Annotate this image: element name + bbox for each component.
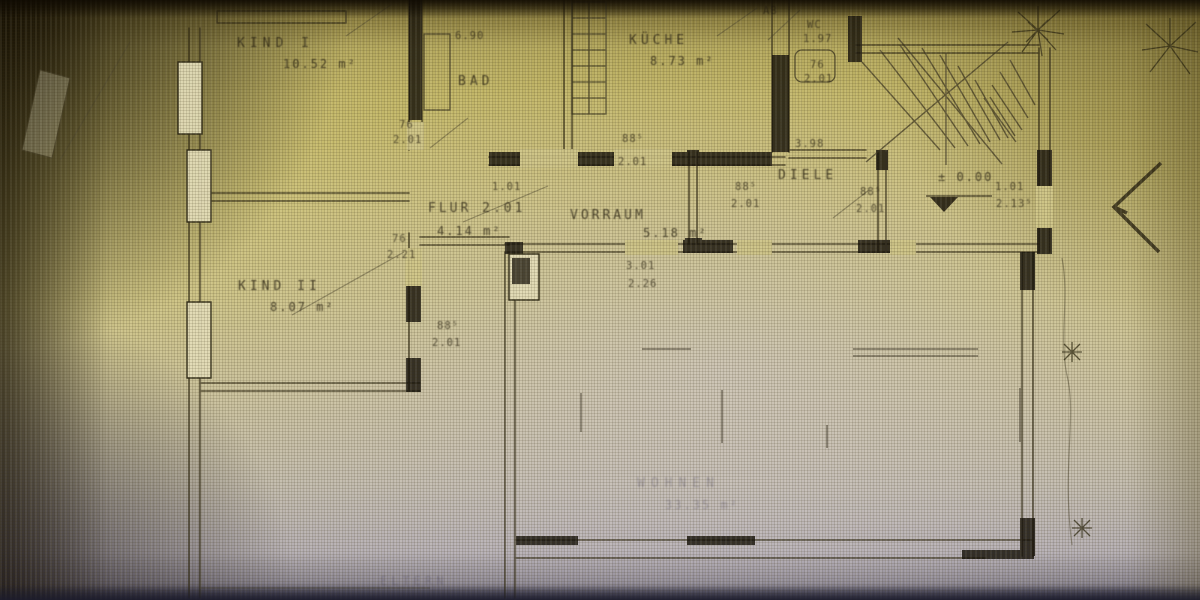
dim-flur-opening: 1.01	[492, 181, 521, 193]
room-area-wc: 1.97	[803, 33, 832, 45]
door-leaf	[512, 258, 530, 284]
windows	[178, 62, 539, 378]
entrance-arrow-icon	[1114, 163, 1161, 252]
dim-kind2-door2-w: 88⁵	[437, 320, 459, 332]
room-area-flur: 4.14 m²	[437, 224, 502, 238]
dim-wc-door-w: 76	[810, 59, 825, 71]
neighbor-balcony	[22, 70, 70, 158]
room-label-wohnen: WOHNEN	[637, 476, 720, 491]
room-area-diele: 3.98	[795, 138, 824, 150]
floorplan-photo: KIND I 10.52 m² 6.90 BAD KÜCHE 8.73 m² A…	[0, 0, 1200, 600]
dim-entry-door-w: 1.01	[995, 181, 1024, 193]
dim-kueche-door-h: 2.01	[618, 156, 647, 168]
room-label-kueche: KÜCHE	[629, 33, 688, 48]
room-area-kind1: 10.52 m²	[283, 57, 357, 71]
door-swings	[60, 4, 1072, 588]
room-label-ab: AB	[763, 5, 778, 17]
dim-kind2-door-w: 76	[392, 233, 407, 245]
room-area-vorraum: 5.18 m²	[643, 226, 708, 240]
dim-diele-door1-w: 88⁵	[735, 181, 757, 193]
staircase	[862, 38, 1035, 165]
dim-bad-door-w: 76	[399, 119, 414, 131]
walls	[189, 0, 1050, 598]
room-label-wc: WC	[807, 19, 822, 31]
dim-kind2-door-h: 2.21	[387, 249, 416, 261]
room-label-flur: FLUR 2.01	[428, 201, 525, 216]
room-area-kueche: 8.73 m²	[650, 54, 715, 68]
dim-kueche-door-w: 88⁵	[622, 133, 644, 145]
room-label-kind2: KIND II	[238, 279, 321, 294]
room-label-bad: BAD	[458, 74, 493, 89]
dim-bad-door-h: 2.01	[393, 134, 422, 146]
plant-icon	[1012, 6, 1198, 538]
floorplan-drawing	[0, 0, 1200, 600]
level-marker-icon	[926, 196, 992, 212]
room-area-wohnen: 33.35 m²	[665, 498, 739, 512]
dim-diele-door1-h: 2.01	[731, 198, 760, 210]
dim-wohnen-opening-w: 3.01	[626, 260, 655, 272]
dim-wc-door-h: 2.01	[804, 73, 833, 85]
dim-diele-door2-w: 88⁵	[860, 186, 882, 198]
room-area-bad: 6.90	[455, 30, 484, 42]
level-annotation: ± 0.00	[938, 170, 993, 184]
dim-entry-door-h: 2.13⁵	[996, 198, 1033, 210]
furniture	[581, 349, 1020, 448]
room-label-vorraum: VORRAUM	[570, 208, 646, 223]
room-area-kind2: 8.07 m²	[270, 300, 335, 314]
bathtub-icon	[424, 34, 450, 110]
room-label-eltern: ELTERN	[380, 574, 447, 588]
dim-diele-door2-h: 2.01	[856, 203, 885, 215]
room-label-kind1: KIND I	[237, 36, 314, 51]
dim-wohnen-opening-h: 2.26	[628, 278, 657, 290]
room-label-diele: DIELE	[778, 168, 837, 183]
wall-poche	[406, 0, 1052, 559]
dim-kind2-door2-h: 2.01	[432, 337, 461, 349]
